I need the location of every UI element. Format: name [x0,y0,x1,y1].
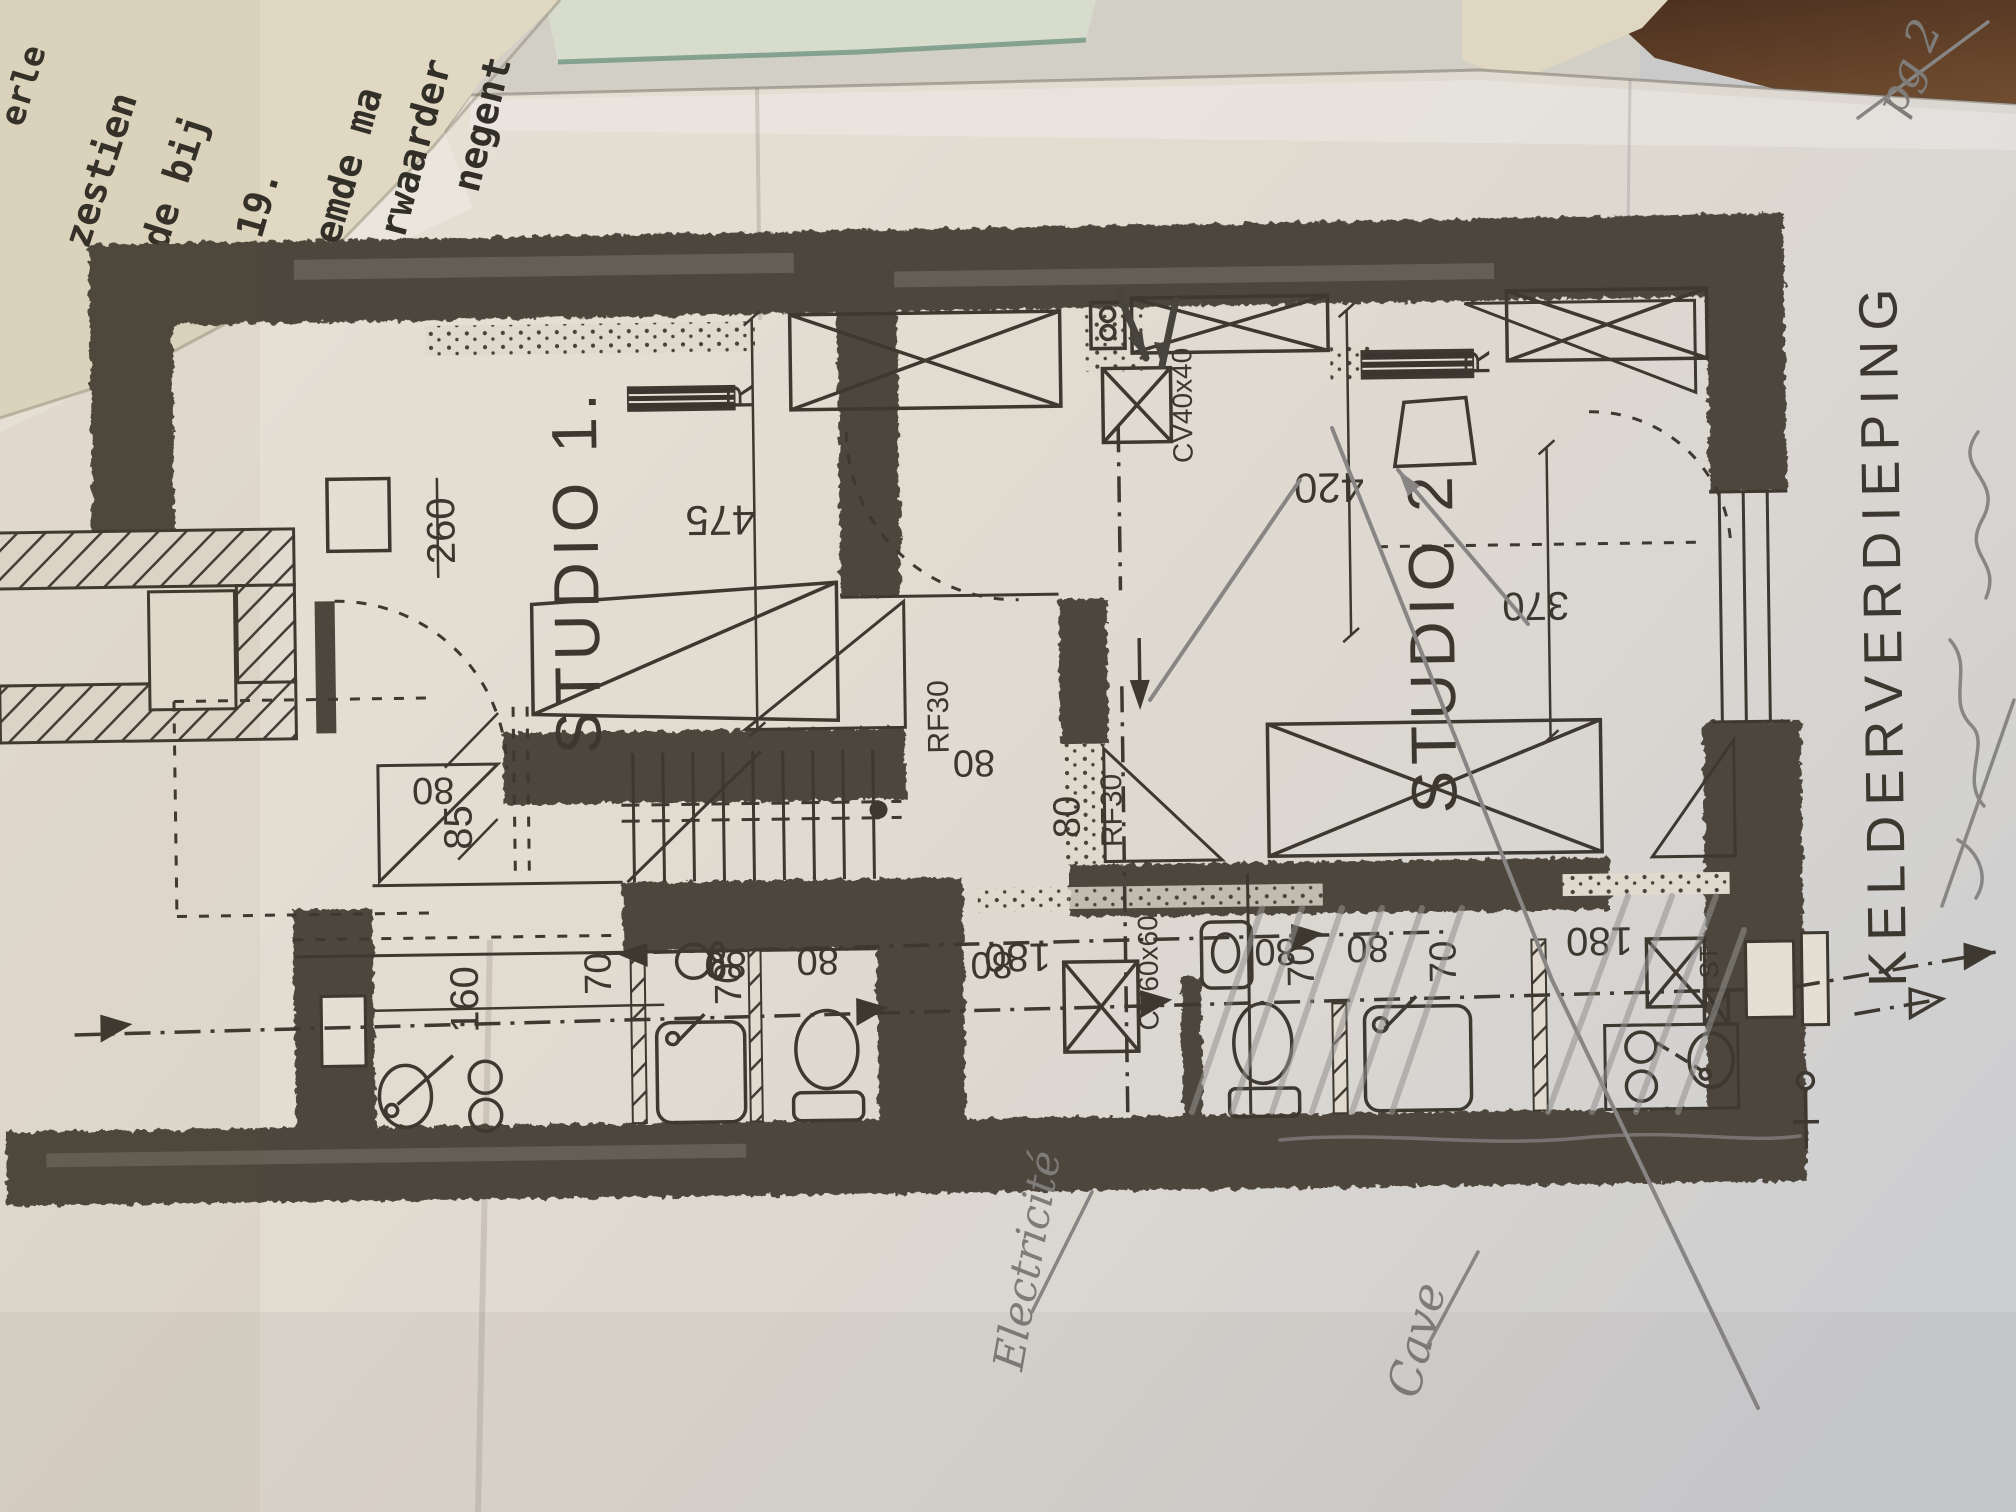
floor-plan-photo: erle zestien n de bij -19. oemde ma rwaa… [0,0,2016,1512]
photo-of-floor-plan: erle zestien n de bij -19. oemde ma rwaa… [0,0,2016,1512]
photo-lighting [0,0,2016,1512]
